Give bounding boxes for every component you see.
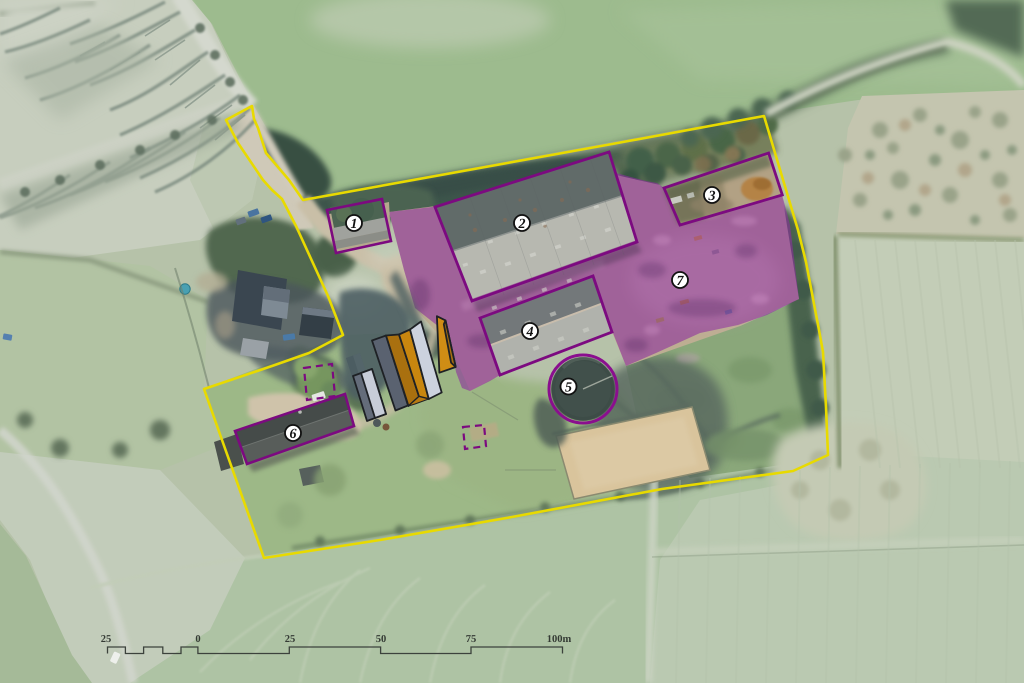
svg-text:3: 3	[708, 189, 716, 204]
svg-text:7: 7	[677, 274, 685, 289]
svg-text:1: 1	[351, 217, 358, 232]
svg-text:6: 6	[290, 427, 297, 442]
svg-text:25: 25	[101, 634, 112, 645]
svg-text:0: 0	[195, 634, 200, 645]
svg-text:75: 75	[466, 634, 477, 645]
svg-text:4: 4	[526, 325, 534, 340]
svg-text:25: 25	[285, 634, 296, 645]
svg-text:5: 5	[565, 380, 572, 395]
svg-text:2: 2	[518, 217, 526, 232]
svg-text:100m: 100m	[547, 634, 572, 645]
svg-text:50: 50	[376, 634, 387, 645]
